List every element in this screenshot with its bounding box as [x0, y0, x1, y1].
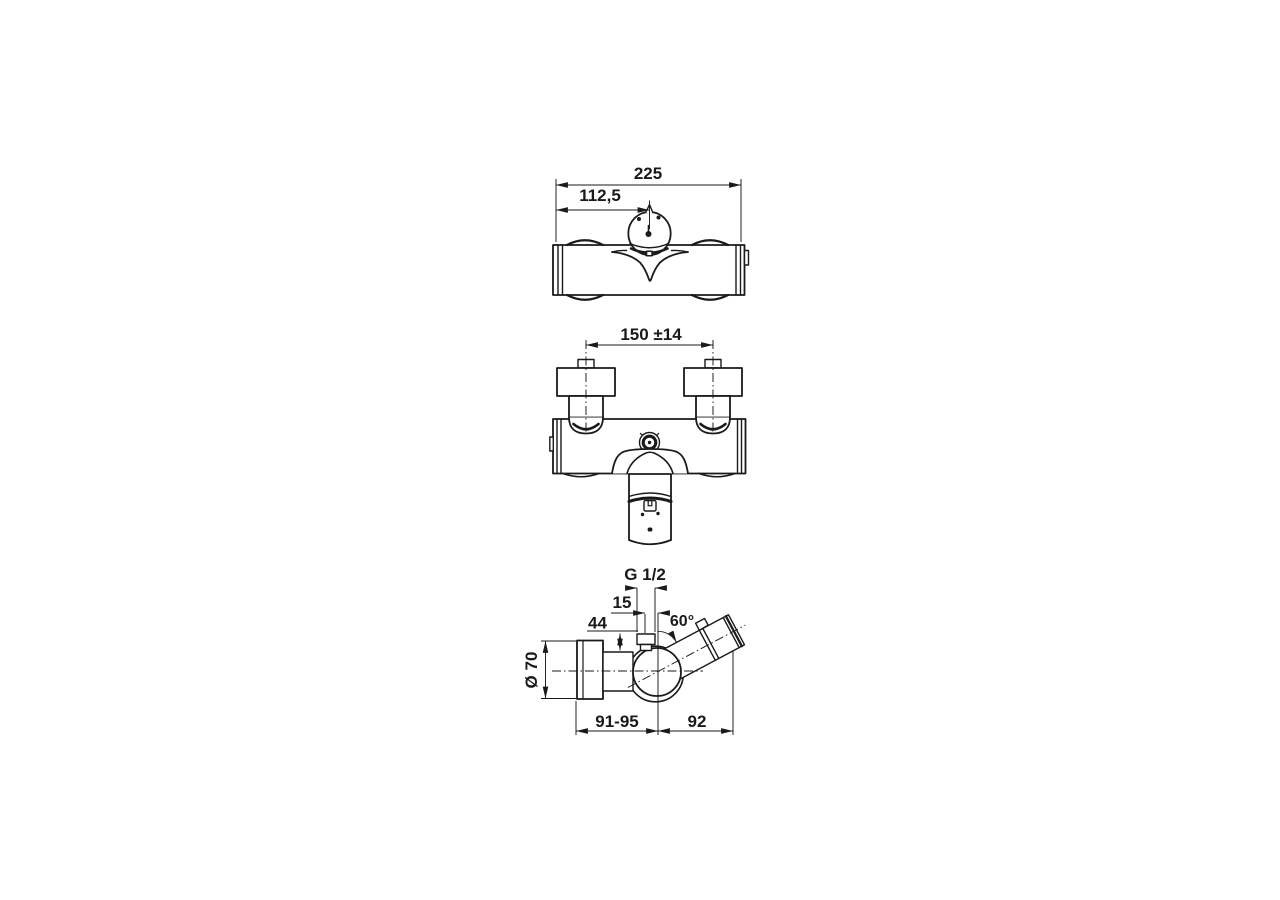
angle-arc-60 [658, 631, 677, 642]
knob-clip-notch [647, 252, 651, 255]
dimension-label-225: 225 [634, 164, 662, 183]
knob-dot-left [637, 217, 641, 221]
technical-drawing-canvas: 225 112,5 [0, 0, 1280, 900]
button-center-dot [648, 441, 651, 444]
side-view: G 1/2 15 44 60° Ø 70 [522, 565, 745, 735]
dimension-label-92: 92 [688, 712, 707, 731]
extension-lines-d70 [541, 641, 576, 699]
dimension-label-44: 44 [588, 614, 607, 633]
dimension-label-g12: G 1/2 [624, 565, 666, 584]
knob-center-dot [646, 231, 652, 237]
handle-front-view [629, 474, 671, 544]
dimension-label-112-5: 112,5 [579, 186, 621, 205]
handle-dot-right [656, 512, 659, 515]
body-end-pin-front [550, 437, 554, 451]
drawing-page: 225 112,5 [0, 0, 1280, 900]
top-view: 225 112,5 [553, 164, 749, 300]
dimension-offset-15: 15 [611, 593, 669, 633]
dimension-label-d70: Ø 70 [522, 652, 541, 689]
handle-dot-left [641, 513, 644, 516]
thread-block-top [637, 634, 655, 645]
dimension-knob-diameter: Ø 70 [522, 641, 576, 699]
dimension-label-150: 150 ±14 [620, 325, 682, 344]
handle-bottom-mark [648, 528, 653, 532]
front-view: 150 ±14 [550, 325, 746, 544]
knob-dot-right [657, 216, 661, 220]
extension-lines-g12 [637, 588, 655, 632]
body-end-pin [745, 251, 749, 266]
valve-body-circle [633, 648, 681, 696]
thread-block-neck [641, 645, 652, 651]
knob-neck [603, 652, 633, 691]
dimension-label-60: 60° [670, 613, 694, 630]
knob-side-view [577, 641, 603, 700]
dimension-label-15: 15 [613, 593, 632, 612]
dimension-label-91-95: 91-95 [595, 712, 638, 731]
